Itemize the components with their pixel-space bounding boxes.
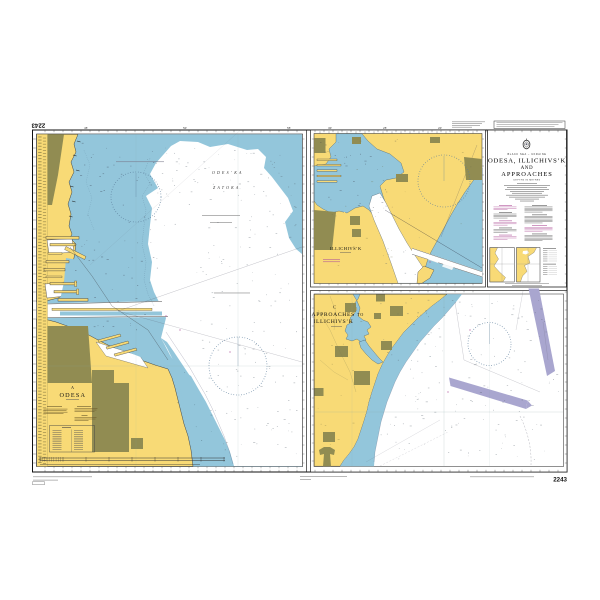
- svg-text:50': 50': [183, 126, 187, 130]
- svg-text:ODES’KA: ODES’KA: [212, 171, 244, 175]
- svg-text:55': 55': [287, 126, 291, 130]
- svg-text:ILLICHIVS’K: ILLICHIVS’K: [330, 246, 362, 251]
- svg-text:APPROACHES TO: APPROACHES TO: [312, 312, 364, 318]
- svg-text:ODESA, ILLICHIVS’K: ODESA, ILLICHIVS’K: [488, 158, 566, 165]
- svg-text:20': 20': [438, 126, 442, 130]
- svg-text:2243: 2243: [553, 477, 567, 484]
- svg-text:45': 45': [84, 126, 88, 130]
- svg-text:A: A: [71, 385, 74, 390]
- svg-text:30': 30': [328, 126, 332, 130]
- svg-text:APPROACHES: APPROACHES: [501, 171, 553, 178]
- svg-text:C: C: [333, 305, 336, 310]
- svg-text:25': 25': [383, 126, 387, 130]
- svg-text:BLACK SEA – UKRAINE: BLACK SEA – UKRAINE: [507, 153, 546, 156]
- svg-text:ODESA: ODESA: [60, 392, 87, 399]
- svg-text:ILLICHIVS’K: ILLICHIVS’K: [314, 319, 354, 325]
- svg-text:DEPTHS IN METRES: DEPTHS IN METRES: [514, 180, 541, 182]
- svg-text:2243: 2243: [31, 122, 45, 129]
- svg-text:ZATOKA: ZATOKA: [213, 186, 240, 190]
